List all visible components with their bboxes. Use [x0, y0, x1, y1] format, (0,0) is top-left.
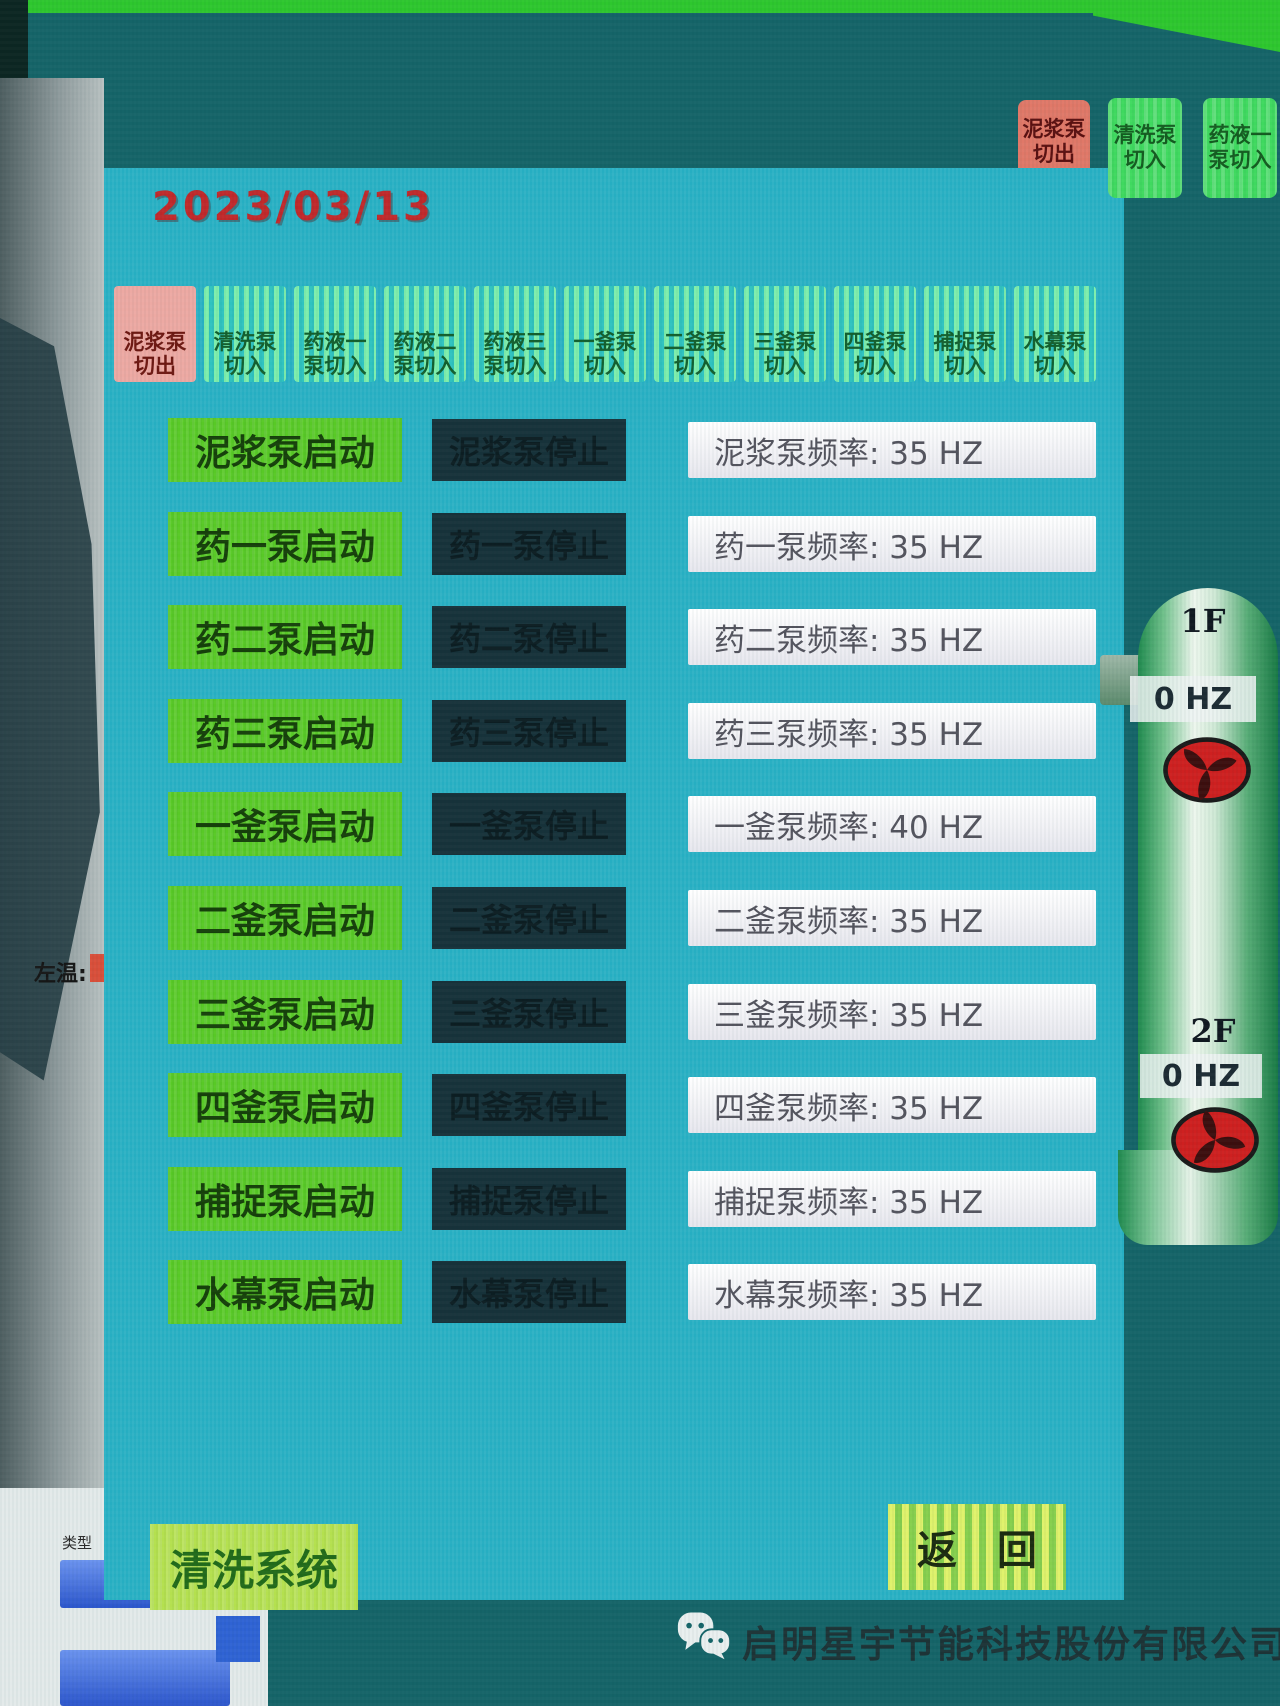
freq-display-chem3-pump: 药三泵频率: 35 HZ — [688, 703, 1096, 759]
start-button-kettle2-pump[interactable]: 二釜泵启动 — [168, 886, 402, 950]
freq-display-chem2-pump: 药二泵频率: 35 HZ — [688, 609, 1096, 665]
stop-button-capture-pump[interactable]: 捕捉泵停止 — [432, 1168, 626, 1230]
tab-mud-pump-cutout[interactable]: 泥浆泵切出 — [114, 286, 196, 382]
back-button[interactable]: 返 回 — [888, 1504, 1066, 1590]
freq-display-mud-pump: 泥浆泵频率: 35 HZ — [688, 422, 1096, 478]
hmi-main-panel: 2023/03/13 泥浆泵切出 清洗泵切入 药液一泵切入 药液二泵切入 药液三… — [104, 168, 1124, 1600]
start-button-kettle1-pump[interactable]: 一釜泵启动 — [168, 792, 402, 856]
stop-button-kettle3-pump[interactable]: 三釜泵停止 — [432, 981, 626, 1043]
corner-button-label: 切出 — [1033, 142, 1075, 167]
start-button-kettle3-pump[interactable]: 三釜泵启动 — [168, 980, 402, 1044]
photo-edge-top-bar — [28, 0, 1095, 13]
fan1-icon — [1160, 734, 1254, 810]
tab-clean-pump-cutin[interactable]: 清洗泵切入 — [204, 286, 286, 382]
freq-display-kettle3-pump: 三釜泵频率: 35 HZ — [688, 984, 1096, 1040]
left-partial-window: 左温: — [0, 78, 104, 1490]
pump-tab-strip: 泥浆泵切出 清洗泵切入 药液一泵切入 药液二泵切入 药液三泵切入 一釜泵切入 二… — [114, 286, 1096, 382]
start-button-chem2-pump[interactable]: 药二泵启动 — [168, 605, 402, 669]
start-button-chem1-pump[interactable]: 药一泵启动 — [168, 512, 402, 576]
fan2-label: 2F — [1168, 1012, 1258, 1050]
photo-edge-top-left — [0, 0, 28, 78]
stop-button-kettle2-pump[interactable]: 二釜泵停止 — [432, 887, 626, 949]
freq-display-kettle4-pump: 四釜泵频率: 35 HZ — [688, 1077, 1096, 1133]
start-button-capture-pump[interactable]: 捕捉泵启动 — [168, 1167, 402, 1231]
corner-button-chem1-pump-cutin[interactable]: 药液一 泵切入 — [1203, 98, 1277, 198]
freq-display-kettle2-pump: 二釜泵频率: 35 HZ — [688, 890, 1096, 946]
tab-capture-pump-cutin[interactable]: 捕捉泵切入 — [924, 286, 1006, 382]
left-temp-label: 左温: — [34, 956, 87, 988]
blue-square[interactable] — [216, 1616, 260, 1662]
tab-chem3-pump-cutin[interactable]: 药液三泵切入 — [474, 286, 556, 382]
tab-kettle2-pump-cutin[interactable]: 二釜泵切入 — [654, 286, 736, 382]
stop-button-chem1-pump[interactable]: 药一泵停止 — [432, 513, 626, 575]
start-button-watercurtain-pump[interactable]: 水幕泵启动 — [168, 1260, 402, 1324]
clean-system-button[interactable]: 清洗系统 — [150, 1524, 358, 1610]
fan1-freq-display: 0 HZ — [1130, 676, 1256, 722]
date-display: 2023/03/13 — [152, 184, 434, 230]
corner-button-label: 泥浆泵 — [1023, 117, 1086, 142]
freq-display-kettle1-pump: 一釜泵频率: 40 HZ — [688, 796, 1096, 852]
freq-display-watercurtain-pump: 水幕泵频率: 35 HZ — [688, 1264, 1096, 1320]
corner-button-label: 泵切入 — [1209, 148, 1272, 173]
stop-button-watercurtain-pump[interactable]: 水幕泵停止 — [432, 1261, 626, 1323]
corner-button-clean-pump-cutin[interactable]: 清洗泵 切入 — [1108, 98, 1182, 198]
stop-button-mud-pump[interactable]: 泥浆泵停止 — [432, 419, 626, 481]
hmi-screen-photo: 左温: 类型 启明星宇节能科技股份有限公司 泥浆泵 切出 2023/03/13 — [0, 0, 1280, 1706]
tab-kettle1-pump-cutin[interactable]: 一釜泵切入 — [564, 286, 646, 382]
left-temp-value-red — [90, 954, 104, 982]
tab-chem1-pump-cutin[interactable]: 药液一泵切入 — [294, 286, 376, 382]
fan2-freq-display: 0 HZ — [1140, 1054, 1262, 1098]
tab-watercurtain-pump-cutin[interactable]: 水幕泵切入 — [1014, 286, 1096, 382]
freq-display-chem1-pump: 药一泵频率: 35 HZ — [688, 516, 1096, 572]
left-window-graphic — [0, 78, 104, 1490]
corner-button-label: 药液一 — [1209, 123, 1272, 148]
start-button-mud-pump[interactable]: 泥浆泵启动 — [168, 418, 402, 482]
start-button-chem3-pump[interactable]: 药三泵启动 — [168, 699, 402, 763]
type-label: 类型 — [62, 1532, 92, 1553]
stop-button-kettle1-pump[interactable]: 一釜泵停止 — [432, 793, 626, 855]
wechat-icon — [676, 1608, 732, 1660]
freq-display-capture-pump: 捕捉泵频率: 35 HZ — [688, 1171, 1096, 1227]
tab-kettle3-pump-cutin[interactable]: 三釜泵切入 — [744, 286, 826, 382]
blue-bar[interactable] — [60, 1650, 230, 1706]
fan2-icon — [1168, 1104, 1262, 1180]
stop-button-chem2-pump[interactable]: 药二泵停止 — [432, 606, 626, 668]
start-button-kettle4-pump[interactable]: 四釜泵启动 — [168, 1073, 402, 1137]
company-watermark: 启明星宇节能科技股份有限公司 — [742, 1614, 1280, 1668]
stop-button-kettle4-pump[interactable]: 四釜泵停止 — [432, 1074, 626, 1136]
corner-button-label: 切入 — [1124, 148, 1166, 173]
corner-button-label: 清洗泵 — [1114, 123, 1177, 148]
fan1-label: 1F — [1158, 602, 1248, 640]
tab-kettle4-pump-cutin[interactable]: 四釜泵切入 — [834, 286, 916, 382]
photo-edge-top-right — [1093, 0, 1280, 52]
stop-button-chem3-pump[interactable]: 药三泵停止 — [432, 700, 626, 762]
tab-chem2-pump-cutin[interactable]: 药液二泵切入 — [384, 286, 466, 382]
